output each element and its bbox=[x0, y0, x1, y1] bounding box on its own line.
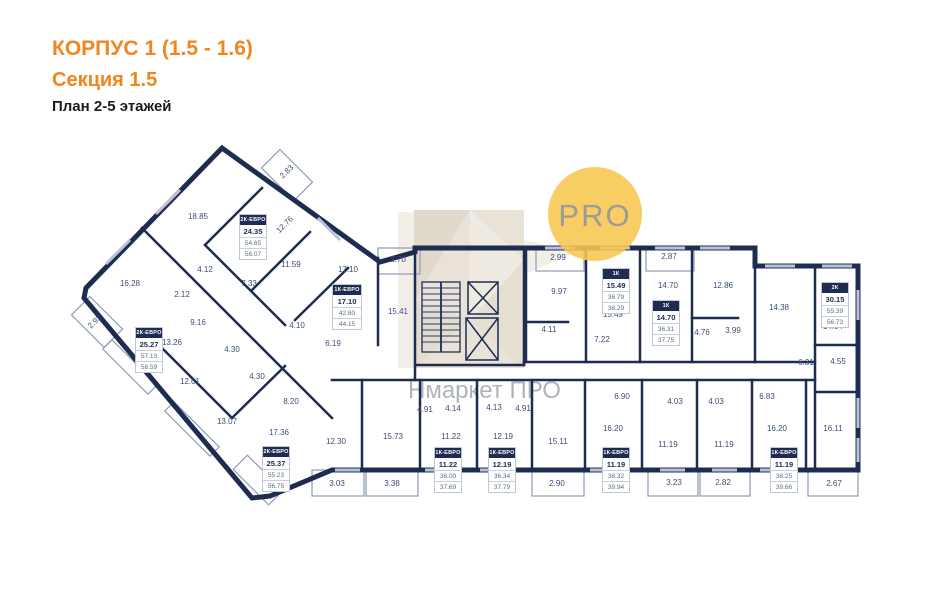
floor-plan-page: КОРПУС 1 (1.5 - 1.6) Секция 1.5 План 2-5… bbox=[0, 0, 941, 600]
apartment-area-2: 56.75 bbox=[263, 481, 289, 491]
dimension-label: 7.33 bbox=[231, 280, 267, 288]
dimension-label: 4.10 bbox=[279, 322, 315, 330]
dimension-label: 4.30 bbox=[239, 373, 275, 381]
dimension-label: 18.85 bbox=[180, 213, 216, 221]
dimension-label: 2.70 bbox=[380, 256, 416, 264]
section-title: Секция 1.5 bbox=[52, 70, 253, 90]
dimension-label: 6.83 bbox=[749, 393, 785, 401]
apartment-area-2: 37.69 bbox=[435, 482, 461, 492]
dimension-label: 4.03 bbox=[698, 398, 734, 406]
apartment-card[interactable]: 2К-ЕВРО 24.35 54.65 56.07 bbox=[239, 214, 267, 260]
apartment-area-2: 37.75 bbox=[653, 335, 679, 345]
apartment-area-1: 55.39 bbox=[822, 306, 848, 317]
dimension-label: 15.73 bbox=[375, 433, 411, 441]
dimension-label: 4.14 bbox=[435, 405, 471, 413]
building-title: КОРПУС 1 (1.5 - 1.6) bbox=[52, 38, 253, 59]
pro-logo-text: PRO bbox=[558, 198, 631, 233]
apartment-area-1: 54.65 bbox=[240, 238, 266, 249]
apartment-area-2: 58.59 bbox=[136, 362, 162, 372]
apartment-type: 1К-ЕВРО bbox=[771, 448, 797, 458]
dimension-label: 4.03 bbox=[657, 398, 693, 406]
apartment-card[interactable]: 2К-ЕВРО 25.37 55.23 56.75 bbox=[262, 446, 290, 492]
apartment-area-2: 44.15 bbox=[333, 319, 361, 329]
apartment-type: 1К-ЕВРО bbox=[489, 448, 515, 458]
dimension-label: 12.19 bbox=[485, 433, 521, 441]
apartment-card[interactable]: 1К-ЕВРО 11.19 38.25 39.66 bbox=[770, 447, 798, 493]
plan-subtitle: План 2-5 этажей bbox=[52, 99, 253, 114]
apartment-card[interactable]: 1К-ЕВРО 17.10 42.80 44.15 bbox=[332, 284, 362, 330]
apartment-room-area: 11.19 bbox=[603, 458, 629, 471]
dimension-label: 16.11 bbox=[815, 425, 851, 433]
apartment-area-2: 38.29 bbox=[603, 303, 629, 313]
apartment-card[interactable]: 2К 30.15 55.39 56.73 bbox=[821, 282, 849, 328]
apartment-room-area: 25.27 bbox=[136, 338, 162, 351]
dimension-label: 11.22 bbox=[433, 433, 469, 441]
dimension-label: 14.70 bbox=[650, 282, 686, 290]
apartment-type: 1К bbox=[653, 301, 679, 311]
apartment-type: 1К bbox=[603, 269, 629, 279]
apartment-area-1: 36.34 bbox=[489, 471, 515, 482]
dimension-label: 12.86 bbox=[705, 282, 741, 290]
dimension-label: 6.19 bbox=[315, 340, 351, 348]
dimension-label: 2.99 bbox=[540, 254, 576, 262]
apartment-card[interactable]: 1К-ЕВРО 12.19 36.34 37.79 bbox=[488, 447, 516, 493]
apartment-room-area: 17.10 bbox=[333, 295, 361, 308]
apartment-type: 2К bbox=[822, 283, 848, 293]
apartment-room-area: 12.19 bbox=[489, 458, 515, 471]
apartment-area-1: 36.31 bbox=[653, 324, 679, 335]
dimension-label: 9.16 bbox=[180, 319, 216, 327]
dimension-label: 11.59 bbox=[273, 261, 309, 269]
apartment-room-area: 14.70 bbox=[653, 311, 679, 324]
dimension-label: 3.99 bbox=[715, 327, 751, 335]
dimension-label: 13.07 bbox=[209, 418, 245, 426]
apartment-room-area: 25.37 bbox=[263, 457, 289, 470]
apartment-room-area: 24.35 bbox=[240, 225, 266, 238]
apartment-card[interactable]: 1К-ЕВРО 11.19 38.32 39.94 bbox=[602, 447, 630, 493]
apartment-card[interactable]: 1К-ЕВРО 11.22 36.00 37.69 bbox=[434, 447, 462, 493]
dimension-label: 9.97 bbox=[541, 288, 577, 296]
dimension-label: 17.36 bbox=[261, 429, 297, 437]
dimension-label: 12.01 bbox=[172, 378, 208, 386]
apartment-area-1: 57.13 bbox=[136, 351, 162, 362]
apartment-area-1: 38.25 bbox=[771, 471, 797, 482]
pro-logo: PRO bbox=[548, 167, 642, 261]
dimension-label: 6.90 bbox=[604, 393, 640, 401]
dimension-label: 17.10 bbox=[330, 266, 366, 274]
apartment-area-1: 36.00 bbox=[435, 471, 461, 482]
dimension-label: 4.12 bbox=[187, 266, 223, 274]
dimension-label: 2.67 bbox=[816, 480, 852, 488]
dimension-label: 15.41 bbox=[380, 308, 416, 316]
dimension-label: 11.19 bbox=[650, 441, 686, 449]
apartment-room-area: 11.19 bbox=[771, 458, 797, 471]
dimension-label: 16.28 bbox=[112, 280, 148, 288]
apartment-type: 1К-ЕВРО bbox=[333, 285, 361, 295]
apartment-type: 2К-ЕВРО bbox=[263, 447, 289, 457]
apartment-area-1: 55.23 bbox=[263, 470, 289, 481]
dimension-label: 3.03 bbox=[319, 480, 355, 488]
apartment-type: 1К-ЕВРО bbox=[435, 448, 461, 458]
dimension-label: 4.55 bbox=[820, 358, 856, 366]
dimension-label: 4.30 bbox=[214, 346, 250, 354]
apartment-card[interactable]: 1К 14.70 36.31 37.75 bbox=[652, 300, 680, 346]
dimension-label: 16.20 bbox=[595, 425, 631, 433]
dimension-label: 2.87 bbox=[651, 253, 687, 261]
dimension-label: 4.11 bbox=[531, 326, 567, 334]
apartment-type: 1К-ЕВРО bbox=[603, 448, 629, 458]
apartment-room-area: 11.22 bbox=[435, 458, 461, 471]
dimension-label: 2.90 bbox=[539, 480, 575, 488]
apartment-area-2: 39.94 bbox=[603, 482, 629, 492]
dimension-label: 7.22 bbox=[584, 336, 620, 344]
dimension-label: 3.23 bbox=[656, 479, 692, 487]
dimension-label: 2.12 bbox=[164, 291, 200, 299]
apartment-area-2: 37.79 bbox=[489, 482, 515, 492]
dimension-label: 14.38 bbox=[761, 304, 797, 312]
dimension-label: 16.20 bbox=[759, 425, 795, 433]
dimension-label: 3.38 bbox=[374, 480, 410, 488]
dimension-label: 6.31 bbox=[788, 359, 824, 367]
dimension-label: 12.30 bbox=[318, 438, 354, 446]
apartment-card[interactable]: 2К-ЕВРО 25.27 57.13 58.59 bbox=[135, 327, 163, 373]
dimension-label: 8.20 bbox=[273, 398, 309, 406]
apartment-area-2: 56.73 bbox=[822, 317, 848, 327]
dimension-label: 15.11 bbox=[540, 438, 576, 446]
apartment-card[interactable]: 1К 15.49 36.79 38.29 bbox=[602, 268, 630, 314]
apartment-type: 2К-ЕВРО bbox=[136, 328, 162, 338]
apartment-room-area: 15.49 bbox=[603, 279, 629, 292]
dimension-label: 11.19 bbox=[706, 441, 742, 449]
apartment-room-area: 30.15 bbox=[822, 293, 848, 306]
apartment-type: 2К-ЕВРО bbox=[240, 215, 266, 225]
apartment-area-2: 39.66 bbox=[771, 482, 797, 492]
apartment-area-1: 42.80 bbox=[333, 308, 361, 319]
apartment-area-1: 38.32 bbox=[603, 471, 629, 482]
page-header: КОРПУС 1 (1.5 - 1.6) Секция 1.5 План 2-5… bbox=[52, 38, 253, 114]
dimension-label: 4.91 bbox=[505, 405, 541, 413]
dimension-label: 2.82 bbox=[705, 479, 741, 487]
apartment-area-2: 56.07 bbox=[240, 249, 266, 259]
apartment-area-1: 36.79 bbox=[603, 292, 629, 303]
